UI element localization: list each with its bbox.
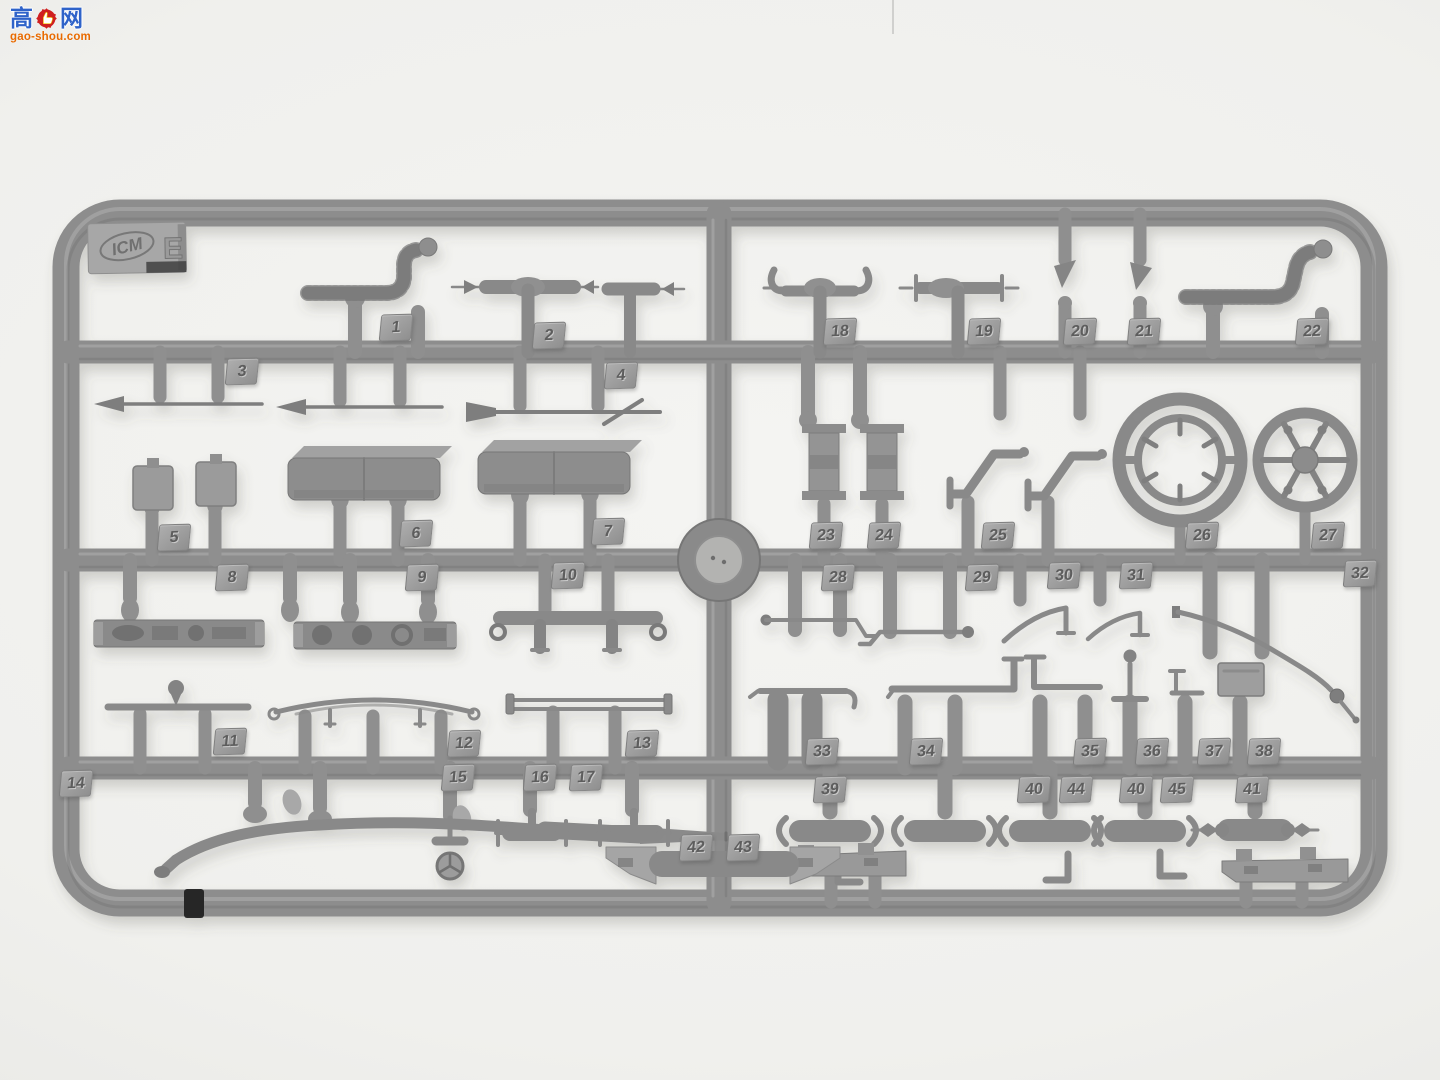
part-number-tag-12: 12 [447,730,482,758]
part-number-tag-6: 6 [399,520,434,548]
part-number-tag-42: 42 [679,834,714,862]
part-clip-21 [1130,262,1152,290]
part-number-tag-16: 16 [523,764,558,792]
part-number-tag-31: 31 [1119,562,1154,590]
part-number-tag-38: 38 [1247,738,1282,766]
part-number-tag-7: 7 [591,518,626,546]
part-lever-30 [1004,608,1074,641]
part-plates-5 [133,454,236,510]
part-number-tag-40: 40 [1119,776,1154,804]
part-number-tag-27: 27 [1311,522,1346,550]
part-wheel-rim-26 [1119,399,1241,521]
part-lances-3-4 [94,396,660,424]
part-axle-beam-10 [491,618,665,650]
part-corrugated-hose-1 [308,238,437,293]
part-bottom-bracket-right [1222,847,1348,882]
part-number-tag-11: 11 [213,728,248,756]
part-number-tag-39: 39 [813,776,848,804]
part-number-tag-4: 4 [604,362,639,390]
part-bracket-34 [888,659,1022,697]
part-steering-wheel-27 [1258,413,1352,507]
part-number-tag-30: 30 [1047,562,1082,590]
part-capsule-41 [1192,823,1318,837]
part-number-tag-34: 34 [909,738,944,766]
part-axle-17 [598,812,670,845]
part-number-tag-29: 29 [965,564,1000,592]
part-number-tag-5: 5 [157,524,192,552]
part-number-tag-2: 2 [532,322,567,350]
watermark-logo: 高 网 gao-shou.com [10,6,106,43]
part-corrugated-hose-22 [1186,240,1332,297]
watermark-url: gao-shou.com [10,31,106,43]
part-number-tag-13: 13 [625,730,660,758]
part-number-tag-40: 40 [1017,776,1052,804]
part-clip-20 [1054,260,1076,288]
part-spool-23 [802,424,846,500]
part-number-tag-14: 14 [59,770,94,798]
watermark-title-row: 高 网 [10,6,106,31]
part-stand-36 [1114,650,1146,700]
part-number-tag-45: 45 [1160,776,1195,804]
part-seat-7 [478,440,642,494]
sprue-drawing: ICM E [0,0,1440,1080]
sprue-letter: E [163,232,184,265]
center-mold-boss [678,519,760,601]
part-tie-rod-13 [506,694,672,714]
part-number-tag-3: 3 [225,358,260,386]
part-bar-11 [108,680,248,707]
part-number-tag-8: 8 [215,564,250,592]
part-tool-tray-8 [94,620,264,647]
part-number-tag-26: 26 [1185,522,1220,550]
part-number-tag-22: 22 [1295,318,1330,346]
part-number-tag-43: 43 [726,834,761,862]
part-twin-cylinders-33 [750,691,855,760]
part-number-tag-28: 28 [821,564,856,592]
watermark-char-left: 高 [10,7,33,30]
part-axle-16 [496,812,568,845]
black-marker-mark [184,889,204,918]
part-number-tag-37: 37 [1197,738,1232,766]
part-number-tag-17: 17 [569,764,604,792]
part-number-tag-9: 9 [405,564,440,592]
part-plate-38 [1218,663,1264,696]
part-lever-31 [1088,613,1148,639]
watermark-gear-icon [34,6,59,31]
part-capsule-40b-45 [1094,818,1196,876]
watermark-char-right: 网 [60,7,83,30]
sprue-photo-scene: ICM E 1234567891011121314151617181920212… [0,0,1440,1080]
part-number-tag-33: 33 [805,738,840,766]
part-number-tag-32: 32 [1343,560,1378,588]
part-bracket-35 [1026,657,1100,687]
part-capsule-40 [894,818,996,844]
part-number-tag-41: 41 [1235,776,1270,804]
part-number-tag-20: 20 [1063,318,1098,346]
part-number-tag-36: 36 [1135,738,1170,766]
part-number-tag-25: 25 [981,522,1016,550]
part-number-tag-24: 24 [867,522,902,550]
part-seat-6 [288,446,452,500]
part-tool-tray-9 [294,622,456,649]
part-rod-28 [761,615,877,637]
sprue-id-slab: ICM E [88,222,187,274]
part-number-tag-44: 44 [1059,776,1094,804]
part-bracket-37 [1170,671,1202,693]
part-number-tag-35: 35 [1073,738,1108,766]
part-capsule-44 [999,818,1101,880]
part-number-tag-10: 10 [551,562,586,590]
part-number-tag-15: 15 [441,764,476,792]
part-number-tag-18: 18 [823,318,858,346]
part-number-tag-1: 1 [379,314,414,342]
part-number-tag-21: 21 [1127,318,1162,346]
part-number-tag-19: 19 [967,318,1002,346]
part-number-tag-23: 23 [809,522,844,550]
part-spool-24 [860,424,904,500]
